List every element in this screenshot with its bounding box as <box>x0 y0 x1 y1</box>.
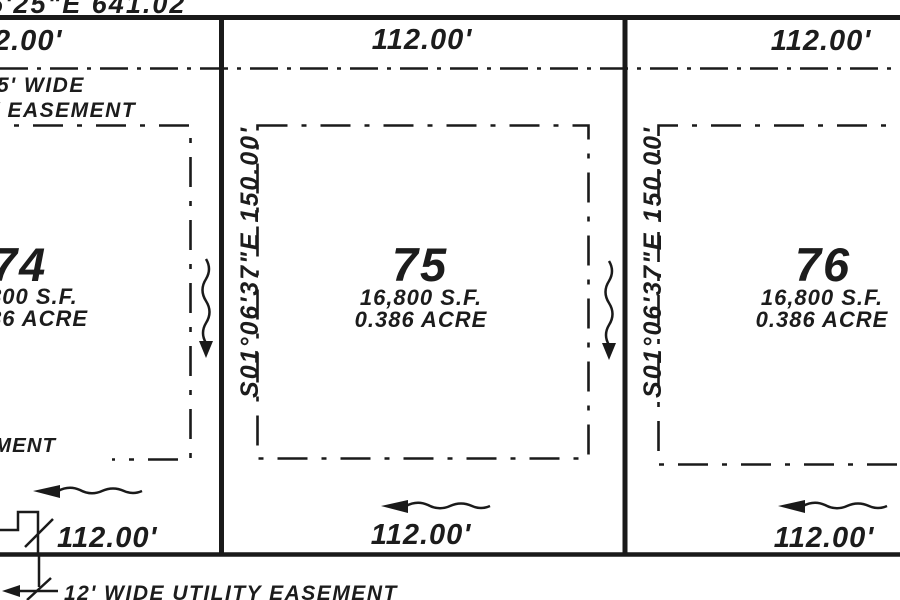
lot75-area-acre: 0.386 ACRE <box>355 307 488 332</box>
plat-sheet: 5'25"E 641.02 2.00' 112.00' 112.00' 5' W… <box>0 0 900 600</box>
lot76-number: 76 <box>795 238 851 291</box>
north-dim-left: 2.00' <box>0 25 62 57</box>
easement-label-line1: 5' WIDE <box>0 74 85 97</box>
lot76-area-acre: 0.386 ACRE <box>756 307 889 332</box>
lot74-area-acre: 86 ACRE <box>0 306 88 331</box>
plat-drawing: 5'25"E 641.02 2.00' 112.00' 112.00' 5' W… <box>0 0 900 600</box>
north-dim-center: 112.00' <box>372 24 473 56</box>
side-bearing-right: S01°06'37"E 150.00' <box>639 126 667 398</box>
south-dim-center: 112.00' <box>371 519 472 551</box>
side-bearing-left: S01°06'37"E 150.00' <box>236 126 264 398</box>
utility-easement-label: 12' WIDE UTILITY EASEMENT <box>64 582 398 600</box>
easement-label-line2: Y EASEMENT <box>0 99 137 122</box>
north-dim-right: 112.00' <box>771 25 872 57</box>
south-dim-left: 112.00' <box>57 522 158 554</box>
lot75-number: 75 <box>392 238 448 291</box>
left-easement-fragment: MENT <box>0 434 57 457</box>
south-dim-right: 112.00' <box>774 522 875 554</box>
